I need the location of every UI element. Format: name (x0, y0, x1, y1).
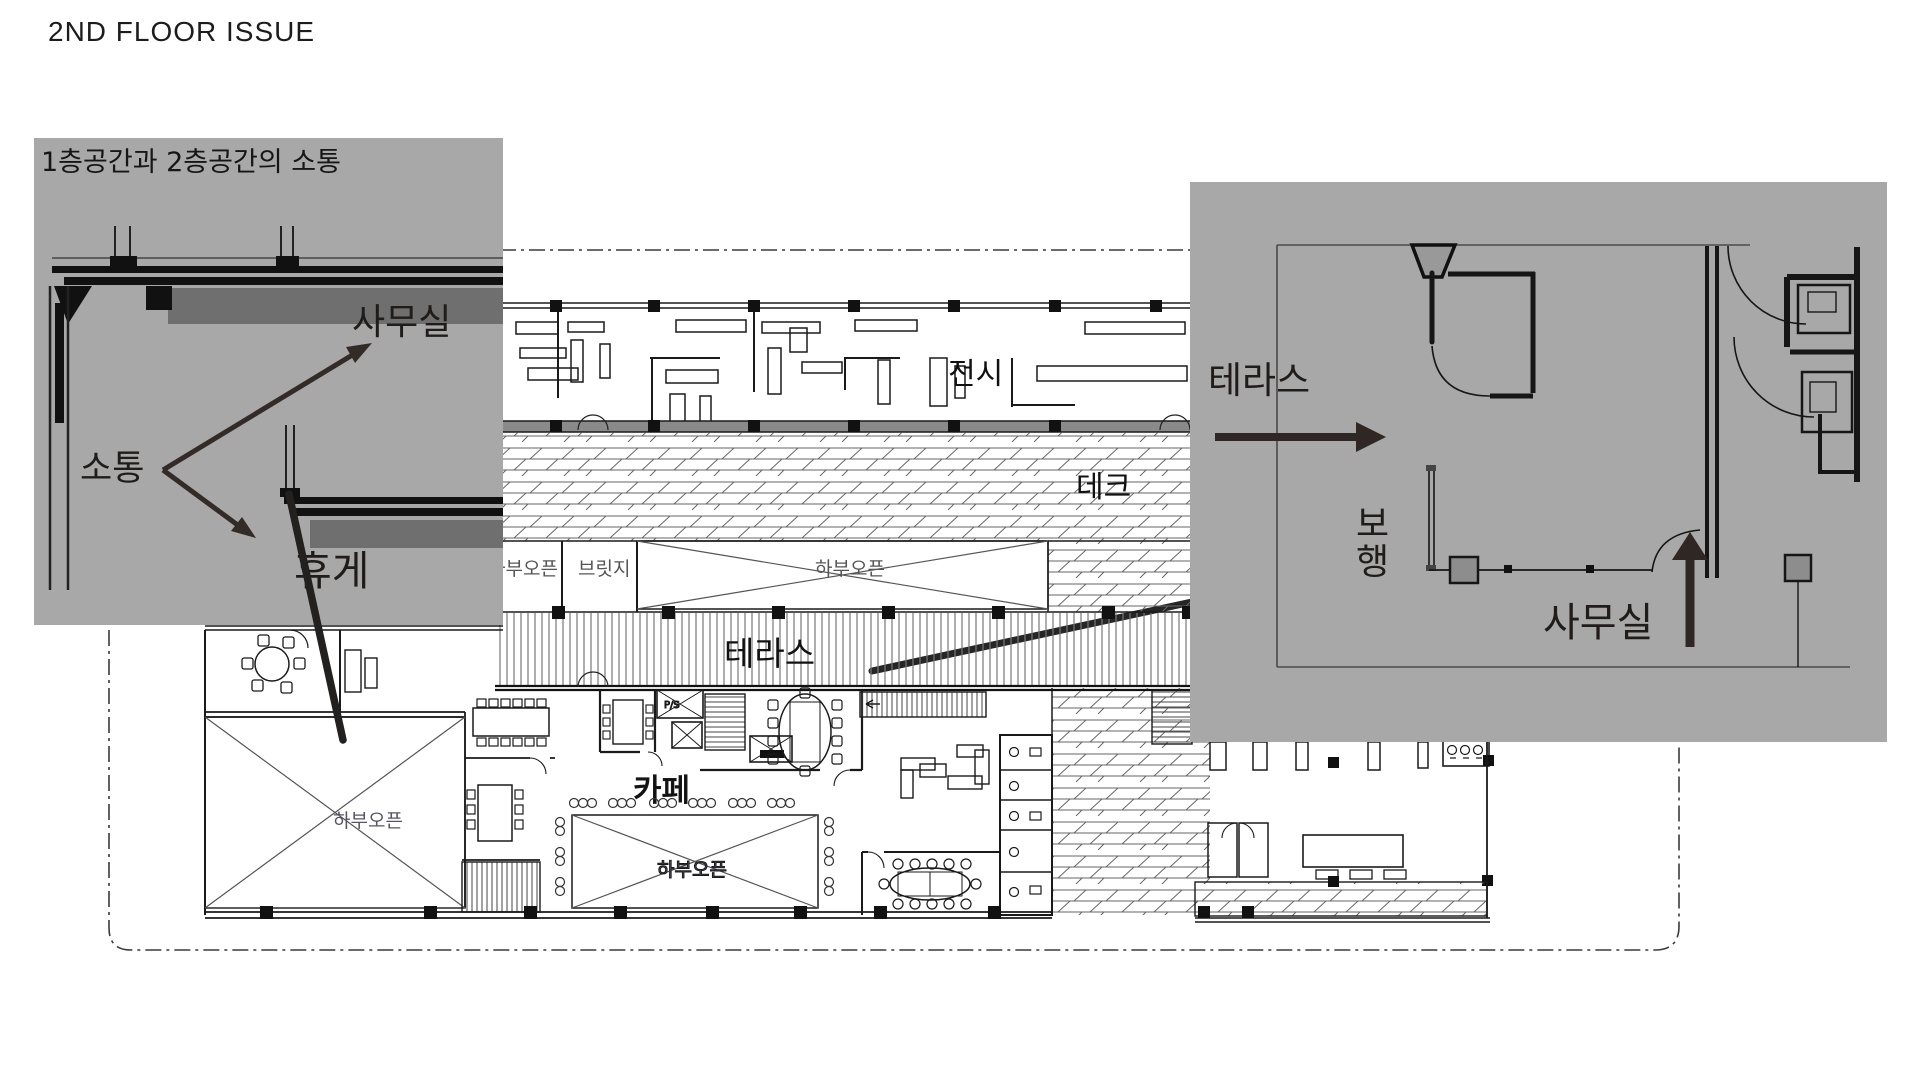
left-inset-panel: 1층공간과 2층공간의 소통 사무실 소통 휴게 (34, 138, 503, 625)
cafe-label: 카페 (633, 773, 690, 809)
core-stairs (705, 694, 745, 750)
open-below-cafe-label: 하부오픈 (657, 859, 727, 881)
detail-walk-char2: 행 (1356, 544, 1389, 582)
detail-walk-char1: 보 (1356, 506, 1389, 544)
detail-terrace-label: 테라스 (1208, 362, 1310, 401)
deck-label: 데크 (1076, 470, 1131, 505)
open-below-center-label: 하부오픈 (815, 558, 885, 580)
section-diagram (34, 138, 503, 625)
cafe-core: P/S 카페 (556, 688, 863, 908)
detail-walk-label: 보 행 (1356, 506, 1389, 582)
bridge-and-voids: 하부오픈 브릿지 하부오픈 (488, 541, 1048, 612)
upper-slab-soffit (168, 288, 503, 324)
exhibition-deck-wall (495, 415, 1210, 432)
terrace-area: 테라스 (495, 606, 1210, 690)
left-stairs (462, 862, 540, 912)
exhibition-area: 전시 (495, 300, 1210, 426)
lounge-sofas (901, 745, 989, 798)
bridge-label: 브릿지 (578, 558, 630, 580)
left-inset-title: 1층공간과 2층공간의 소통 (41, 140, 341, 179)
section-office-label: 사무실 (352, 304, 451, 342)
open-below-left-label: 하부오픈 (333, 810, 403, 832)
lounge-and-rooms (205, 690, 1192, 919)
slide: 2ND FLOOR ISSUE (0, 0, 1920, 1080)
section-communication-label: 소통 (80, 451, 144, 488)
shaft-label: P/S (664, 700, 680, 711)
section-rest-label: 휴게 (294, 550, 369, 593)
exhibition-label: 전시 (948, 357, 1003, 392)
right-inset-panel: 테라스 보 행 사무실 (1190, 182, 1887, 742)
exhibition-stands (516, 320, 1187, 424)
right-wing (1195, 740, 1494, 922)
detail-office-label: 사무실 (1543, 602, 1653, 644)
terrace-label: 테라스 (724, 634, 815, 673)
detail-plan-drawing (1190, 182, 1887, 742)
lower-slab-soffit (310, 520, 503, 548)
